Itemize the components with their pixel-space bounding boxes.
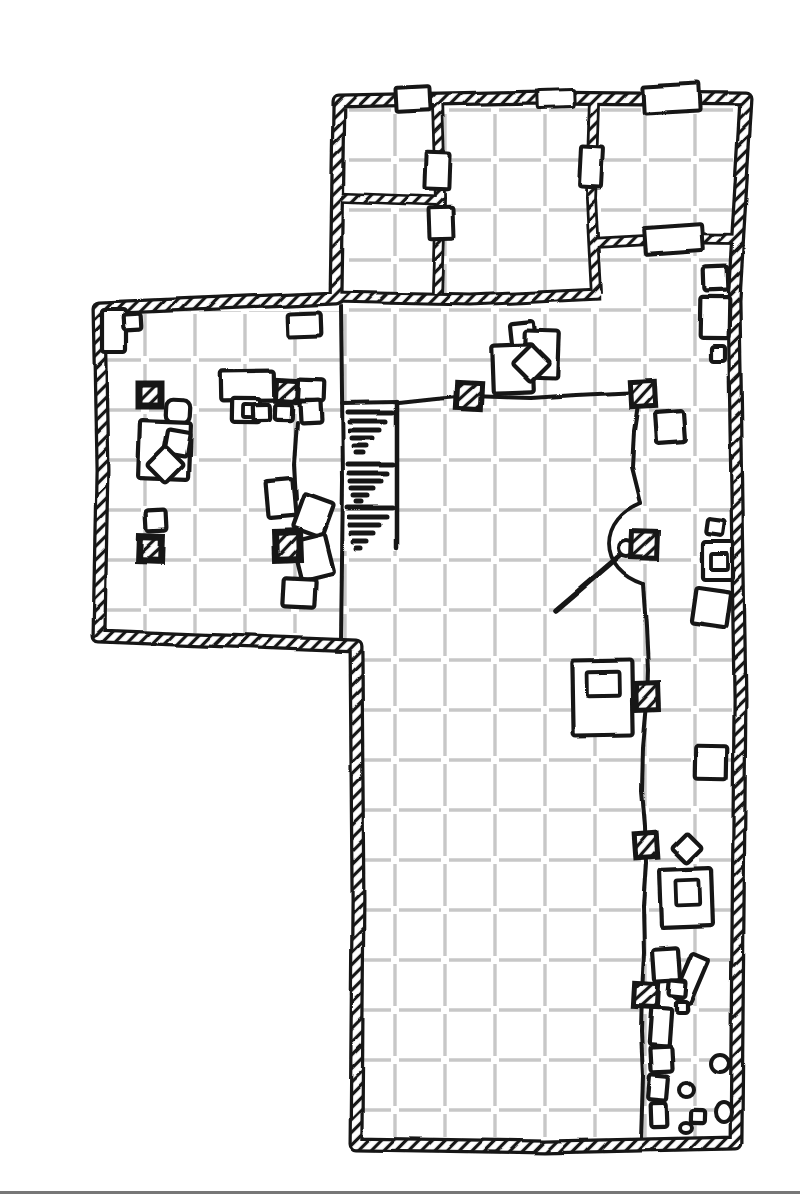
crate-body [283, 577, 315, 608]
shelf-body [700, 297, 730, 338]
altar-inner [675, 880, 700, 907]
edge-layer [0, 1191, 800, 1194]
table [221, 371, 276, 402]
crate [648, 1075, 669, 1101]
rock [680, 1123, 692, 1133]
door-room-a-top [395, 86, 430, 112]
crate [691, 1110, 704, 1123]
table-body [221, 371, 276, 402]
door-room-a-c [424, 152, 450, 190]
pillar [139, 537, 162, 561]
pillar [276, 532, 300, 560]
crate-body [705, 518, 724, 535]
crate-body [298, 379, 325, 401]
crate [145, 510, 166, 531]
wing-partition-line [341, 306, 343, 641]
crate-body [691, 588, 732, 629]
altar [659, 868, 713, 928]
crate-body [648, 1075, 669, 1101]
crate [264, 479, 295, 518]
crate [299, 399, 321, 422]
room-a-floor-grid [347, 108, 432, 196]
crate [253, 405, 271, 422]
pillar [632, 532, 659, 559]
crate [298, 379, 325, 401]
crate-body [695, 746, 728, 780]
crate [123, 314, 142, 331]
crate [283, 577, 315, 608]
crate-body [275, 404, 293, 421]
crate [650, 1046, 672, 1072]
pillar [276, 379, 298, 401]
crate-body [668, 979, 686, 996]
shelf-body [704, 267, 729, 291]
pillar [633, 982, 658, 1007]
crate-body [676, 1001, 688, 1012]
door-room-d-hall [643, 224, 703, 255]
altar-inner [587, 672, 620, 697]
shelf [700, 297, 730, 338]
pillar [637, 683, 660, 710]
crate [695, 746, 728, 780]
crate-body [653, 947, 681, 981]
room-ac-wall-hatch [437, 101, 440, 294]
crate-body [654, 411, 686, 444]
crate-body [253, 405, 271, 422]
pillar [634, 833, 658, 858]
rock [711, 1054, 729, 1072]
pillar [630, 380, 655, 407]
door-room-c-d [579, 146, 603, 187]
crate-body [299, 399, 321, 422]
crate-body [711, 346, 725, 361]
crate [653, 947, 681, 981]
crate-body [264, 479, 295, 518]
crate-body [691, 1110, 704, 1123]
page-edge-line [0, 1191, 800, 1194]
dungeon-map [0, 0, 800, 1200]
crate [705, 518, 724, 535]
pillar [456, 382, 481, 409]
shelf [704, 267, 729, 291]
crate-body [651, 1103, 668, 1128]
rock [680, 1082, 694, 1096]
room-b-floor-grid [347, 206, 432, 292]
crate-body [650, 1046, 672, 1072]
shelf [287, 312, 322, 336]
crate [691, 588, 732, 629]
stair-shaft-top-line [342, 402, 397, 403]
room-d-floor-grid [601, 108, 733, 236]
crate [668, 979, 686, 996]
crate [651, 1103, 668, 1128]
room-ab-wall-hatch [335, 197, 437, 201]
altar [571, 660, 633, 735]
map-page [0, 0, 800, 1200]
crate [649, 1007, 672, 1046]
main-hall-floor-grid [342, 247, 732, 1137]
chest-inner [711, 553, 728, 570]
stair-shaft [344, 405, 396, 551]
chest [702, 541, 733, 580]
room-c-floor-grid [444, 108, 588, 293]
seat-body [165, 399, 190, 423]
crate [676, 1001, 688, 1012]
pillar [139, 384, 161, 406]
wall-gap-top [537, 89, 576, 107]
crate-body [145, 510, 166, 531]
shelf-body [287, 312, 322, 336]
crate-body [649, 1007, 672, 1046]
crate [654, 411, 686, 444]
door-room-b-c [428, 208, 453, 240]
crate-body [123, 314, 142, 331]
crate [711, 346, 725, 361]
rock [715, 1102, 731, 1122]
crate [275, 404, 293, 421]
seat [165, 399, 190, 423]
door-top-right [642, 84, 701, 114]
